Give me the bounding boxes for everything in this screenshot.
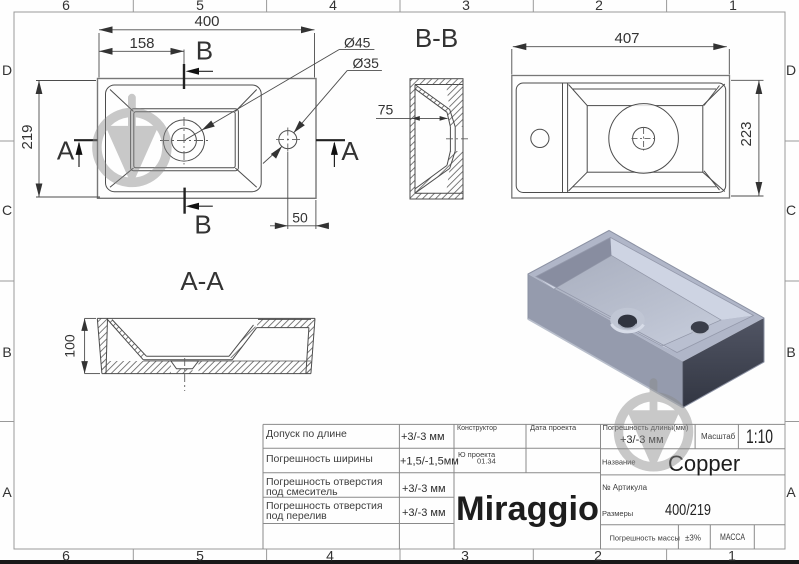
svg-text:под перелив: под перелив <box>266 510 327 522</box>
svg-text:3: 3 <box>462 0 470 13</box>
svg-text:D: D <box>786 62 796 78</box>
svg-text:3: 3 <box>461 548 469 564</box>
svg-text:B: B <box>194 210 211 240</box>
svg-text:4: 4 <box>329 0 337 13</box>
svg-text:158: 158 <box>129 35 154 52</box>
svg-text:Допуск по длине: Допуск по длине <box>266 428 347 440</box>
svg-text:2: 2 <box>594 548 602 564</box>
svg-text:4: 4 <box>326 548 334 564</box>
svg-text:6: 6 <box>62 548 70 564</box>
svg-text:МАССА: МАССА <box>720 532 745 542</box>
svg-text:Погрешность массы: Погрешность массы <box>610 534 680 543</box>
svg-text:01.34: 01.34 <box>477 457 496 466</box>
svg-text:Масштаб: Масштаб <box>701 432 736 441</box>
svg-text:Погрешность ширины: Погрешность ширины <box>266 453 373 465</box>
svg-text:B: B <box>196 35 213 65</box>
svg-text:Miraggio: Miraggio <box>456 490 599 528</box>
svg-text:B-B: B-B <box>415 23 458 53</box>
svg-text:100: 100 <box>62 334 78 358</box>
svg-text:C: C <box>786 202 796 218</box>
svg-text:A: A <box>341 136 359 166</box>
svg-text:400: 400 <box>194 13 219 30</box>
svg-text:+3/-3 мм: +3/-3 мм <box>402 483 446 495</box>
svg-text:5: 5 <box>196 0 204 13</box>
svg-text:+1,5/-1,5мм: +1,5/-1,5мм <box>400 456 459 468</box>
svg-text:B: B <box>786 344 795 360</box>
svg-text:Размеры: Размеры <box>602 509 633 518</box>
svg-text:Конструктор: Конструктор <box>457 425 497 432</box>
svg-text:под смеситель: под смеситель <box>266 486 338 498</box>
svg-text:219: 219 <box>19 124 36 149</box>
svg-text:Ø45: Ø45 <box>344 35 371 51</box>
svg-text:B: B <box>2 344 11 360</box>
svg-text:№ Артикула: № Артикула <box>602 483 648 492</box>
svg-text:75: 75 <box>378 102 394 118</box>
svg-text:D: D <box>2 62 12 78</box>
svg-text:223: 223 <box>738 121 755 146</box>
svg-text:±3%: ±3% <box>685 534 701 543</box>
svg-text:1: 1 <box>729 0 737 13</box>
svg-text:A-A: A-A <box>180 266 224 296</box>
svg-text:407: 407 <box>614 30 639 47</box>
svg-text:+3/-3 мм: +3/-3 мм <box>401 431 445 443</box>
svg-text:1:10: 1:10 <box>746 427 773 448</box>
svg-text:6: 6 <box>62 0 70 13</box>
svg-text:+3/-3 мм: +3/-3 мм <box>402 507 446 519</box>
svg-text:A: A <box>57 135 75 165</box>
svg-text:Ø35: Ø35 <box>353 55 380 71</box>
svg-text:2: 2 <box>595 0 603 13</box>
svg-text:5: 5 <box>196 548 204 564</box>
svg-text:A: A <box>2 484 12 500</box>
svg-text:C: C <box>2 202 12 218</box>
svg-text:1: 1 <box>728 548 736 564</box>
svg-text:50: 50 <box>292 210 308 226</box>
svg-text:A: A <box>786 484 796 500</box>
svg-text:Дата проекта: Дата проекта <box>530 423 577 432</box>
svg-text:400/219: 400/219 <box>665 502 711 519</box>
